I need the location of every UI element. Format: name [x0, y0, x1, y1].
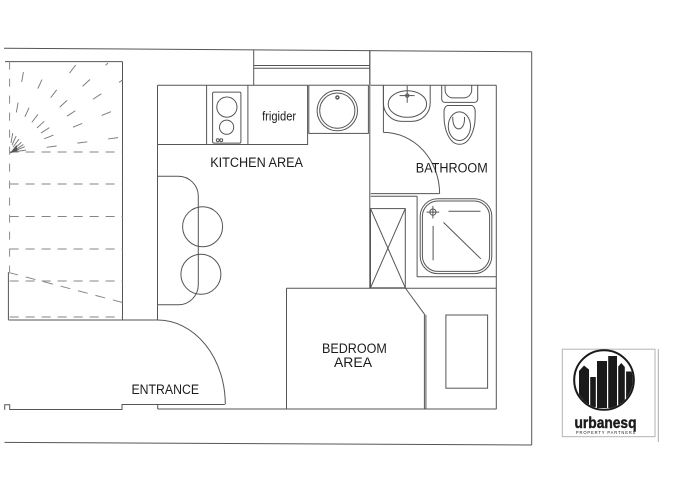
svg-text:KITCHEN AREA: KITCHEN AREA	[210, 155, 303, 170]
svg-text:BATHROOM: BATHROOM	[416, 160, 488, 175]
svg-text:PROPERTY PARTNERS: PROPERTY PARTNERS	[576, 430, 636, 435]
svg-text:ENTRANCE: ENTRANCE	[132, 382, 200, 397]
svg-text:BEDROOM: BEDROOM	[322, 341, 387, 356]
svg-text:frigider: frigider	[262, 110, 296, 124]
svg-text:AREA: AREA	[334, 355, 372, 370]
